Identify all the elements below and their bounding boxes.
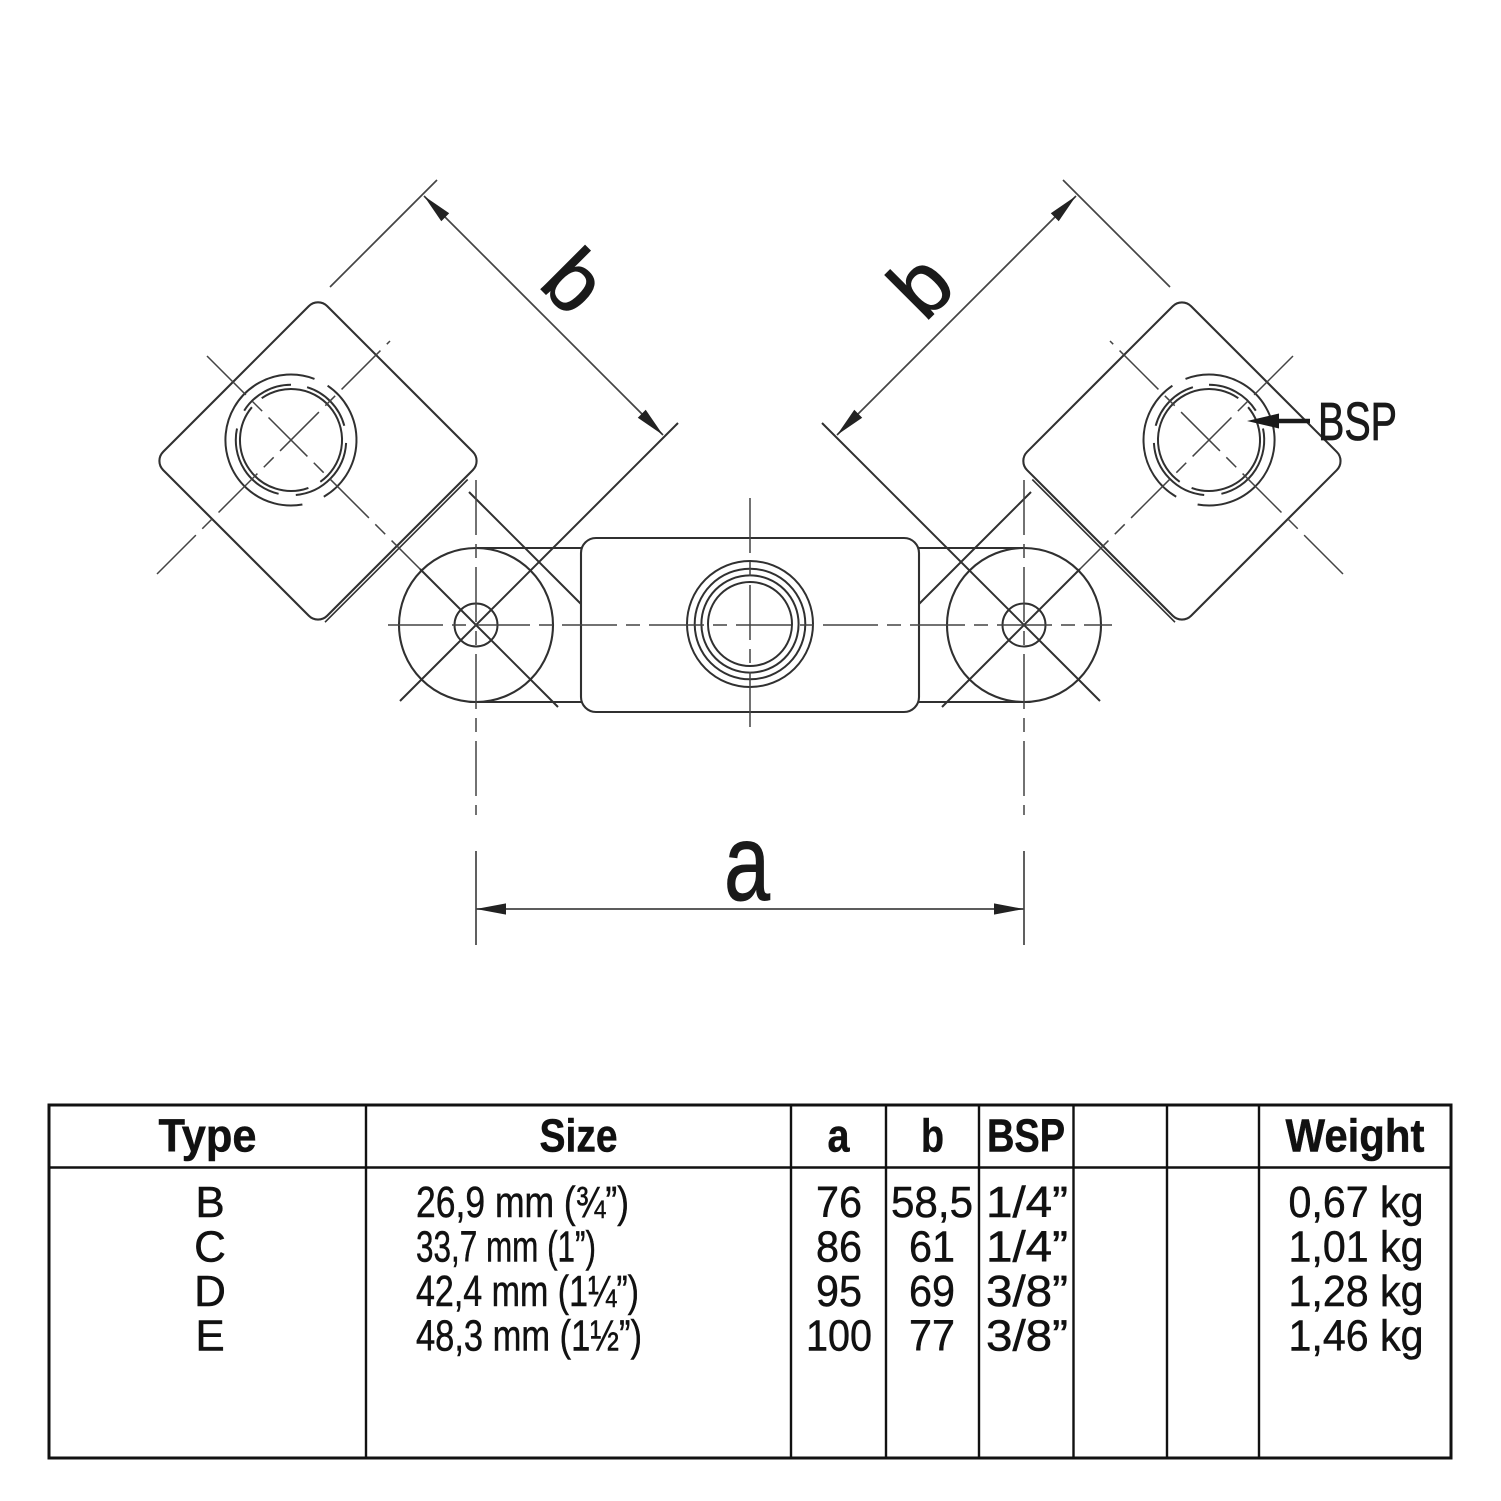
svg-text:95: 95 bbox=[816, 1267, 862, 1316]
svg-text:D: D bbox=[194, 1267, 226, 1316]
svg-text:Size: Size bbox=[540, 1110, 618, 1162]
svg-text:E: E bbox=[195, 1312, 224, 1361]
svg-text:C: C bbox=[194, 1223, 226, 1272]
svg-text:BSP: BSP bbox=[987, 1110, 1065, 1162]
svg-text:3/8”: 3/8” bbox=[986, 1267, 1068, 1316]
svg-text:a: a bbox=[828, 1110, 850, 1162]
svg-text:100: 100 bbox=[806, 1312, 872, 1361]
svg-text:Weight: Weight bbox=[1286, 1110, 1425, 1162]
svg-text:1,01 kg: 1,01 kg bbox=[1289, 1223, 1424, 1272]
svg-text:86: 86 bbox=[816, 1223, 862, 1272]
svg-text:a: a bbox=[724, 802, 770, 924]
svg-text:Type: Type bbox=[159, 1110, 257, 1162]
svg-text:1/4”: 1/4” bbox=[986, 1223, 1068, 1272]
svg-text:61: 61 bbox=[909, 1223, 955, 1272]
svg-text:48,3 mm (1½”): 48,3 mm (1½”) bbox=[416, 1312, 642, 1361]
svg-text:33,7 mm (1”): 33,7 mm (1”) bbox=[416, 1223, 596, 1272]
svg-text:1/4”: 1/4” bbox=[986, 1178, 1068, 1227]
svg-text:77: 77 bbox=[909, 1312, 955, 1361]
svg-text:b: b bbox=[921, 1110, 944, 1162]
svg-text:69: 69 bbox=[909, 1267, 955, 1316]
svg-text:76: 76 bbox=[816, 1178, 862, 1227]
svg-text:58,5: 58,5 bbox=[891, 1178, 973, 1227]
svg-text:1,28 kg: 1,28 kg bbox=[1289, 1267, 1424, 1316]
svg-text:0,67 kg: 0,67 kg bbox=[1289, 1178, 1424, 1227]
svg-text:26,9 mm (¾”): 26,9 mm (¾”) bbox=[416, 1178, 629, 1227]
svg-text:B: B bbox=[195, 1178, 224, 1227]
svg-text:1,46 kg: 1,46 kg bbox=[1289, 1312, 1424, 1361]
svg-text:3/8”: 3/8” bbox=[986, 1312, 1068, 1361]
svg-text:42,4 mm (1¼”): 42,4 mm (1¼”) bbox=[416, 1267, 639, 1316]
svg-text:BSP: BSP bbox=[1318, 392, 1397, 452]
